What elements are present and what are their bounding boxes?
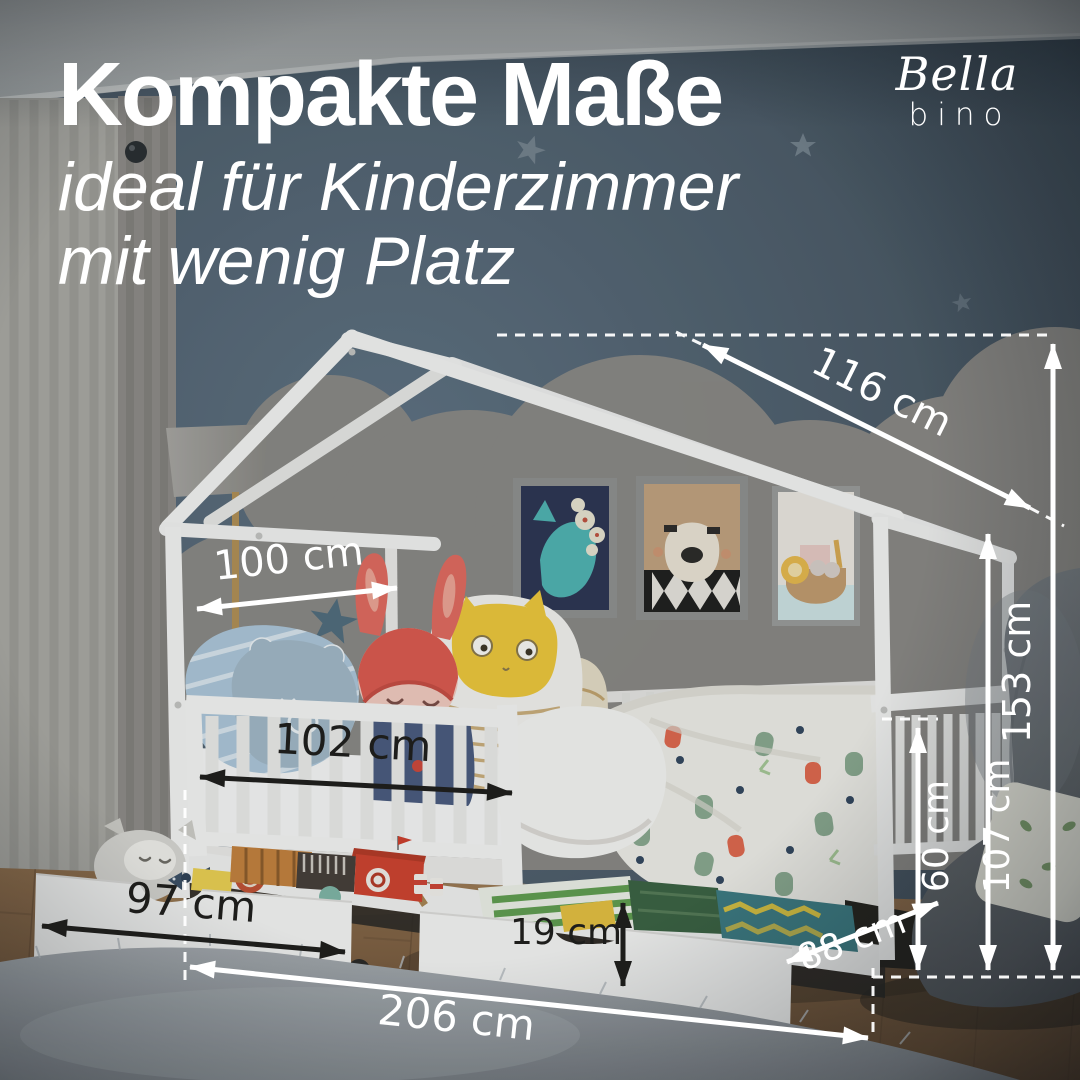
brand-name-bottom: bino <box>898 98 1022 132</box>
measurement-label-drawer-height: 19 cm <box>510 912 622 953</box>
measurement-label-drawer-width: 97 cm <box>124 873 258 932</box>
measurement-label-lying-width: 102 cm <box>273 714 433 771</box>
measurement-label-height-frame: 107 cm <box>977 758 1018 893</box>
brand-logo: Bella bino <box>892 50 1022 132</box>
bedroom-scene: 116 cm 100 cm 153 cm 107 cm 60 cm 88 cm … <box>0 0 1080 1080</box>
brand-name-top: Bella <box>892 50 1022 98</box>
measurement-label-height-total: 153 cm <box>995 601 1039 744</box>
product-infographic: 116 cm 100 cm 153 cm 107 cm 60 cm 88 cm … <box>0 0 1080 1080</box>
measurement-label-height-rail: 60 cm <box>916 780 957 892</box>
